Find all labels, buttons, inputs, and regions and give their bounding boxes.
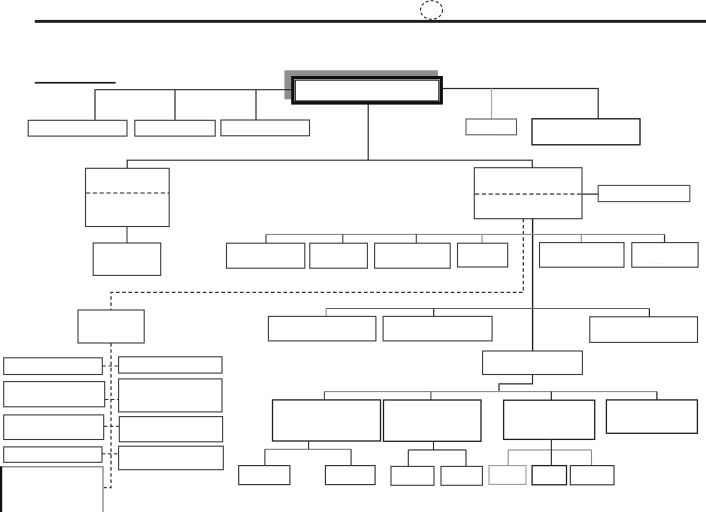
svg-text:... .....: ... ..... xyxy=(650,260,666,266)
svg-text:..........: .......... xyxy=(474,129,491,135)
